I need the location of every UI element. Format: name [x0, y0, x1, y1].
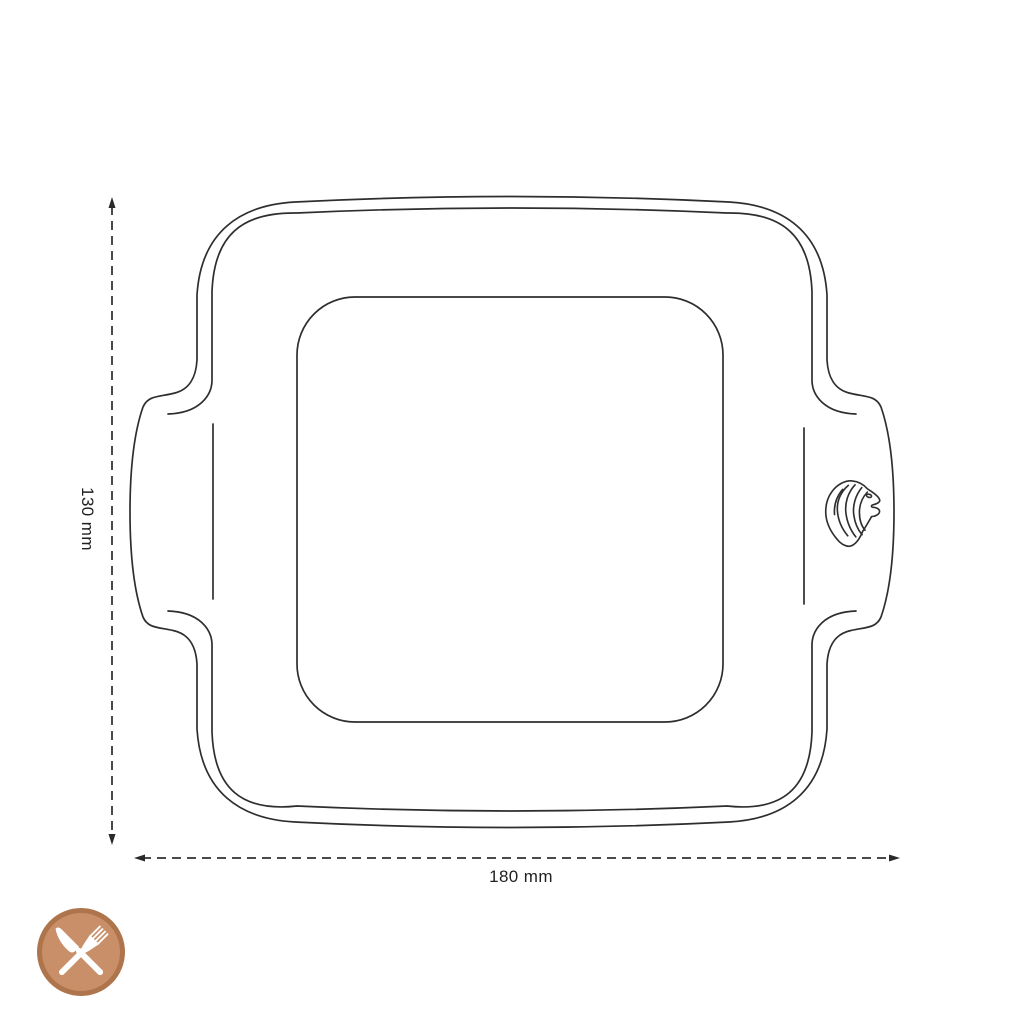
lion-head-icon [826, 481, 880, 546]
width-dimension-label: 180 mm [489, 867, 553, 887]
dish-inner-rim-top [168, 208, 856, 414]
dish-outline-group [130, 197, 894, 828]
dish-floor [297, 297, 723, 722]
dish-outer-outline [130, 197, 894, 828]
height-dimension-label: 130 mm [77, 487, 97, 551]
dish-inner-rim-bottom [168, 611, 856, 811]
arrow-left-icon [134, 855, 145, 862]
arrow-down-icon [109, 834, 116, 845]
dimension-lines [112, 206, 892, 858]
arrow-up-icon [109, 197, 116, 208]
arrow-right-icon [889, 855, 900, 862]
cutlery-badge [37, 908, 125, 996]
